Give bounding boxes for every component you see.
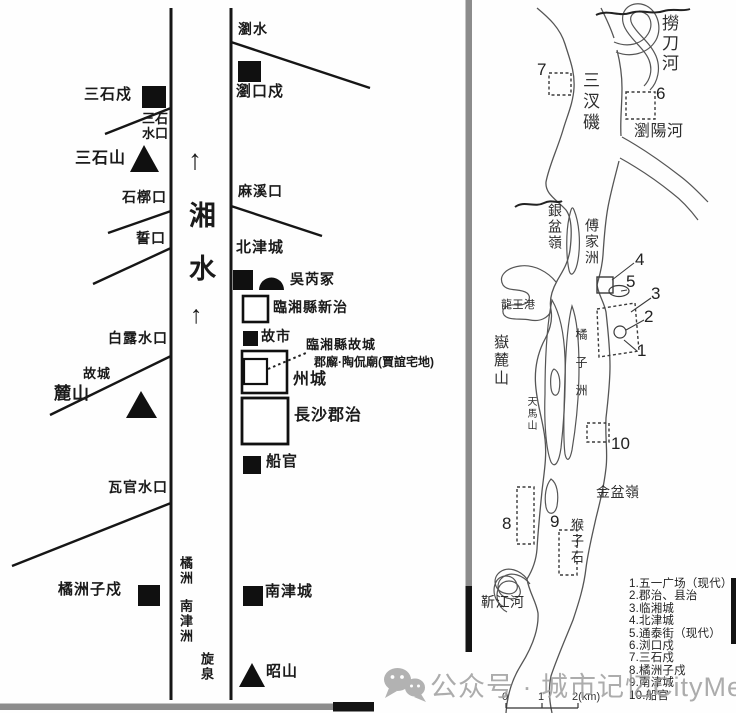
triangle-marker-sanshi-mountain [130, 145, 159, 172]
legend-item-1: 1.五一广场（现代） [629, 578, 736, 590]
label-fujia-isle: 傅家洲 [585, 218, 599, 266]
site-number-7: 7 [537, 60, 546, 79]
label-shiguo-mouth: 石槨口 [122, 190, 167, 206]
label-jinjiang-river: 靳江河 [481, 595, 525, 611]
label-ju-isle: 橘洲 [179, 556, 192, 586]
label-liu-river: 瀏水 [238, 22, 268, 38]
square-marker-nanjin-city [243, 586, 263, 606]
liuyang-river-line-2 [620, 158, 698, 220]
square-outline-linxiang-new-seat [243, 296, 268, 322]
site-number-2: 2 [644, 307, 653, 326]
legend-item-7: 7.三石戍 [629, 652, 736, 664]
longwang-port-inlet [502, 266, 556, 321]
label-sanshi-mountain: 三石山 [75, 150, 126, 168]
divider-gray-bar [466, 0, 473, 586]
label-office-temple: 郡廨·陶侃廟(賈誼宅地) [314, 356, 434, 369]
square-marker-chuanguan [243, 456, 261, 474]
label-nanjin-isle: 南津洲 [179, 599, 192, 644]
site-number-9: 9 [550, 512, 559, 531]
site-6-box [626, 92, 655, 119]
tomb-dome-marker-wurui [259, 278, 284, 291]
legend-item-2: 2.郡治、县治 [629, 590, 736, 602]
site-number-8: 8 [502, 514, 511, 533]
label-waguan-watermouth: 瓦官水口 [108, 480, 168, 496]
site-2-circle [614, 326, 626, 338]
square-marker-liukou-fort [238, 61, 261, 82]
label-maxi-mouth: 麻溪口 [238, 184, 283, 200]
label-longwang-port: 龍王港 [501, 299, 536, 311]
site-number-4: 4 [635, 250, 644, 269]
label-liukou-fort: 瀏口戍 [236, 84, 284, 101]
label-yuelu-mountain: 嶽麓山 [493, 334, 508, 388]
square-marker-juzhouzi-fort [138, 585, 160, 606]
legend-item-5: 5.通泰街（现代） [629, 628, 736, 640]
wechat-icon [384, 668, 426, 702]
legend-item-4: 4.北津城 [629, 615, 736, 627]
triangle-marker-zhao-mountain [239, 663, 265, 687]
small-islet [545, 479, 558, 513]
label-sanshi-fort: 三石戍 [84, 87, 132, 104]
label-jinpen-ridge: 金盆嶺 [596, 485, 640, 501]
label-linxiang-new-seat: 臨湘縣新治 [273, 300, 348, 316]
label-wurui-tomb: 吳芮冢 [290, 272, 335, 288]
figure-xiang-river-maps: 三石戍 三石 水口 三石山 石槨口 誓口 ↑ 湘 水 ↑ 白露水口 故城 麓山 … [0, 0, 736, 713]
bottom-gray-bar [0, 704, 333, 711]
label-bailu-watermouth: 白露水口 [108, 331, 168, 347]
triangle-marker-lu-mountain [126, 391, 157, 418]
square-marker-beijin-city [233, 270, 253, 290]
river-name-xiang: 湘 [189, 201, 217, 231]
label-old-city: 故城 [83, 367, 111, 382]
liuyang-river-line-1 [622, 137, 708, 202]
label-zhao-mountain: 昭山 [266, 664, 298, 681]
label-houzi-rock: 猴子石 [570, 518, 583, 566]
label-old-market: 故市 [261, 329, 291, 345]
site-7-box [549, 73, 571, 95]
bottom-black-bar [333, 702, 374, 712]
islet-pond [551, 369, 560, 395]
square-marker-old-market [243, 331, 258, 346]
site-number-10: 10 [611, 434, 630, 453]
label-lu-mountain: 麓山 [54, 384, 90, 403]
label-yinpen-ridge: 銀盆嶺 [548, 203, 562, 251]
site-number-6: 6 [656, 84, 665, 103]
site-8-box [517, 487, 534, 544]
label-shi-mouth: 誓口 [136, 231, 166, 247]
site-4-box [597, 277, 613, 293]
legend-item-3: 3.临湘城 [629, 603, 736, 615]
label-liuyang-river: 瀏陽河 [634, 123, 684, 141]
site-number-3: 3 [651, 284, 660, 303]
divider-black-bar [466, 586, 473, 652]
east-bank-mid [617, 50, 622, 136]
river-flow-arrow-top: ↑ [188, 144, 203, 175]
label-xuan-spring: 旋泉 [200, 652, 213, 682]
river-flow-arrow-bottom: ↑ [190, 301, 204, 329]
label-laodao-river: 撈刀河 [660, 14, 677, 74]
label-juzi-isle: 橘子洲 [575, 328, 587, 412]
label-zhou-city: 州城 [293, 371, 327, 389]
city-outline-squares [242, 296, 288, 444]
laodao-river-line-1 [614, 12, 658, 90]
label-beijin-city: 北津城 [236, 240, 284, 257]
west-islet [545, 300, 566, 465]
label-nanjin-city: 南津城 [265, 584, 313, 601]
watermark-text: 公众号 · 城市记忆CityMemory [430, 665, 736, 704]
label-juzhouzi-fort: 橘洲子戍 [58, 582, 122, 599]
square-marker-sanshi-fort [142, 86, 166, 108]
label-chuanguan: 船官 [266, 454, 298, 471]
label-linxiang-old-city: 臨湘縣故城 [306, 338, 376, 353]
river-name-shui: 水 [189, 254, 217, 284]
fujia-island [567, 208, 580, 274]
site-number-1: 1 [637, 341, 646, 360]
label-sancha-ji: 三汊磯 [581, 71, 598, 134]
label-changsha-seat: 長沙郡治 [294, 407, 362, 425]
site-number-5: 5 [626, 272, 635, 291]
left-map-river-banks [171, 8, 231, 700]
legend-item-6: 6.浏口戍 [629, 640, 736, 652]
label-sanshi-watermouth: 三石 水口 [142, 112, 168, 141]
square-outline-changsha-seat [242, 398, 288, 444]
square-outline-linxiang-old-city [244, 359, 267, 384]
label-tianma-mountain: 天馬山 [525, 396, 535, 432]
